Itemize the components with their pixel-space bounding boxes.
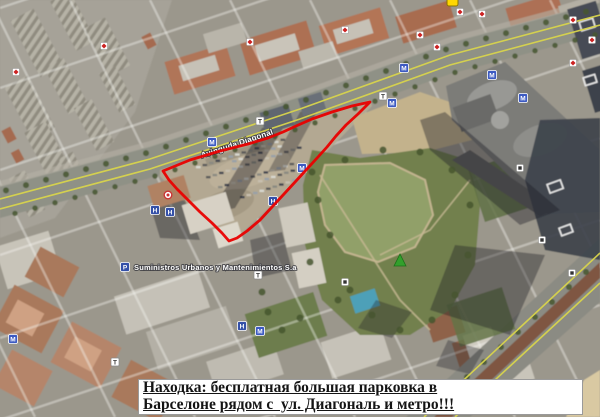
- metro-icon: M: [388, 99, 397, 108]
- tram-icon: T: [111, 358, 119, 366]
- svg-text:M: M: [257, 328, 262, 335]
- svg-text:M: M: [489, 72, 494, 79]
- metro-icon: M: [488, 71, 497, 80]
- svg-text:P: P: [123, 264, 128, 271]
- business-label: Suministros Urbanos y Mantenimientos S.a: [134, 263, 297, 272]
- map-base-layer: [0, 0, 600, 417]
- parking-icon: P: [121, 263, 130, 272]
- tram-icon: T: [379, 92, 387, 100]
- svg-text:T: T: [258, 118, 262, 125]
- hotel-icon: H: [151, 206, 160, 215]
- yellow-pushpin-icon: [447, 0, 458, 6]
- annotated-satellite-map: M M M M M M M M H H H H T T T T P: [0, 0, 600, 417]
- metro-icon: M: [9, 335, 18, 344]
- tram-icon: T: [254, 271, 262, 279]
- svg-text:M: M: [401, 65, 406, 72]
- caption-box: Находка: бесплатная большая парковка в Б…: [138, 379, 583, 415]
- svg-text:M: M: [389, 100, 394, 107]
- metro-icon: M: [400, 64, 409, 73]
- svg-text:M: M: [10, 336, 15, 343]
- metro-icon: M: [208, 138, 217, 147]
- svg-text:M: M: [520, 95, 525, 102]
- svg-text:H: H: [168, 209, 173, 216]
- svg-text:H: H: [240, 323, 245, 330]
- svg-text:T: T: [113, 359, 117, 366]
- hotel-icon: H: [238, 322, 247, 331]
- red-circle-icon: [164, 191, 172, 199]
- svg-text:M: M: [209, 139, 214, 146]
- svg-text:T: T: [381, 93, 385, 100]
- svg-text:T: T: [256, 272, 260, 279]
- caption-line-1: Находка: бесплатная большая парковка в: [143, 380, 582, 397]
- svg-text:H: H: [153, 207, 158, 214]
- hotel-icon: H: [166, 208, 175, 217]
- satellite-imagery: M M M M M M M M H H H H T T T T P: [0, 0, 600, 417]
- tram-icon: T: [256, 117, 264, 125]
- metro-icon: M: [256, 327, 265, 336]
- metro-icon: M: [519, 94, 528, 103]
- caption-line-2: Барселоне рядом с ул. Диагональ и метро!…: [143, 397, 582, 414]
